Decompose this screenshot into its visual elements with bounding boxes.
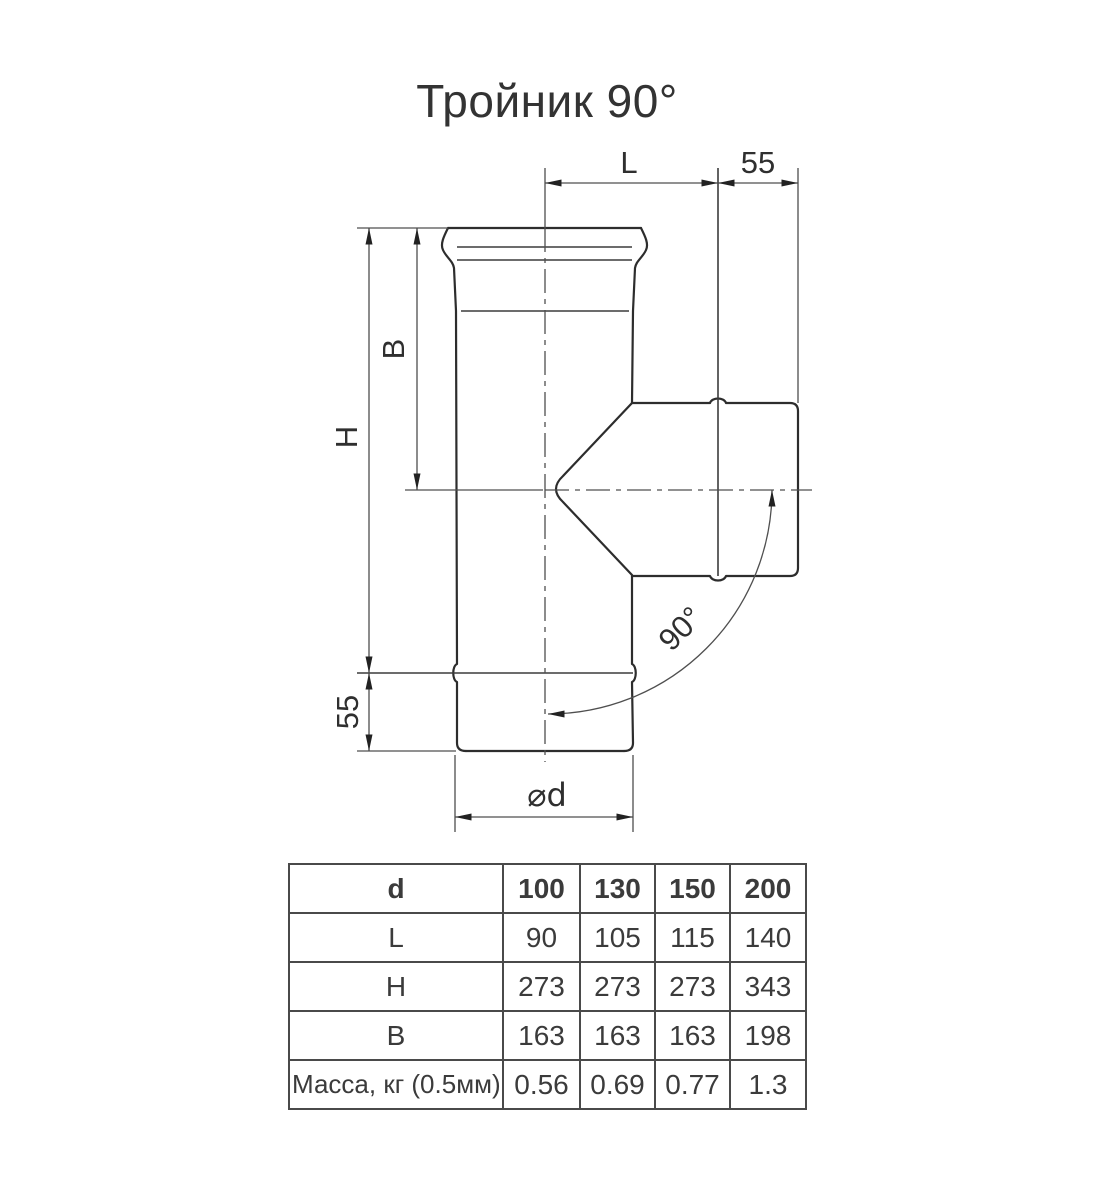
table-cell: 163 <box>655 1011 730 1060</box>
branch-cone <box>556 403 632 575</box>
extension-lines <box>357 168 798 832</box>
table-cell: 273 <box>655 962 730 1011</box>
table-row: Масса, кг (0.5мм) 0.56 0.69 0.77 1.3 <box>289 1060 806 1109</box>
table-header-cell: 100 <box>503 864 580 913</box>
page: Тройник 90° <box>0 0 1094 1200</box>
dimension-label-l: L <box>620 145 637 180</box>
table-row-label: Масса, кг (0.5мм) <box>289 1060 503 1109</box>
table-row-label: B <box>289 1011 503 1060</box>
angle-arc <box>548 490 772 714</box>
dimension-label-55-bottom: 55 <box>330 695 365 729</box>
table-header-row: d 100 130 150 200 <box>289 864 806 913</box>
table-cell: 0.56 <box>503 1060 580 1109</box>
table-cell: 273 <box>580 962 655 1011</box>
spec-table: d 100 130 150 200 L 90 105 115 140 H 273… <box>288 863 807 1110</box>
table-header-cell: 130 <box>580 864 655 913</box>
table-cell: 163 <box>503 1011 580 1060</box>
table-cell: 115 <box>655 913 730 962</box>
pipe-right-edge-lower <box>624 576 636 751</box>
dimension-label-h: H <box>329 426 364 448</box>
pipe-right-edge-upper <box>632 228 647 403</box>
table-row: L 90 105 115 140 <box>289 913 806 962</box>
diameter-label: ⌀d <box>527 776 567 814</box>
table-header-cell: 150 <box>655 864 730 913</box>
table-row-label: L <box>289 913 503 962</box>
tee-technical-drawing: L 55 H B 55 ⌀d 90° <box>0 0 1094 860</box>
table-cell: 198 <box>730 1011 806 1060</box>
table-cell: 273 <box>503 962 580 1011</box>
table-header-cell: 200 <box>730 864 806 913</box>
table-header-cell: d <box>289 864 503 913</box>
table-cell: 105 <box>580 913 655 962</box>
table-cell: 90 <box>503 913 580 962</box>
dimension-lines <box>369 183 798 817</box>
dimension-label-55-top: 55 <box>741 145 775 180</box>
pipe-seam-lines <box>357 168 718 673</box>
table-row-label: H <box>289 962 503 1011</box>
angle-label: 90° <box>652 600 710 658</box>
table-row: H 273 273 273 343 <box>289 962 806 1011</box>
table-cell: 163 <box>580 1011 655 1060</box>
table-cell: 140 <box>730 913 806 962</box>
dimension-label-b: B <box>376 339 411 360</box>
table-cell: 0.77 <box>655 1060 730 1109</box>
table-cell: 0.69 <box>580 1060 655 1109</box>
table-cell: 1.3 <box>730 1060 806 1109</box>
table-row: B 163 163 163 198 <box>289 1011 806 1060</box>
table-cell: 343 <box>730 962 806 1011</box>
